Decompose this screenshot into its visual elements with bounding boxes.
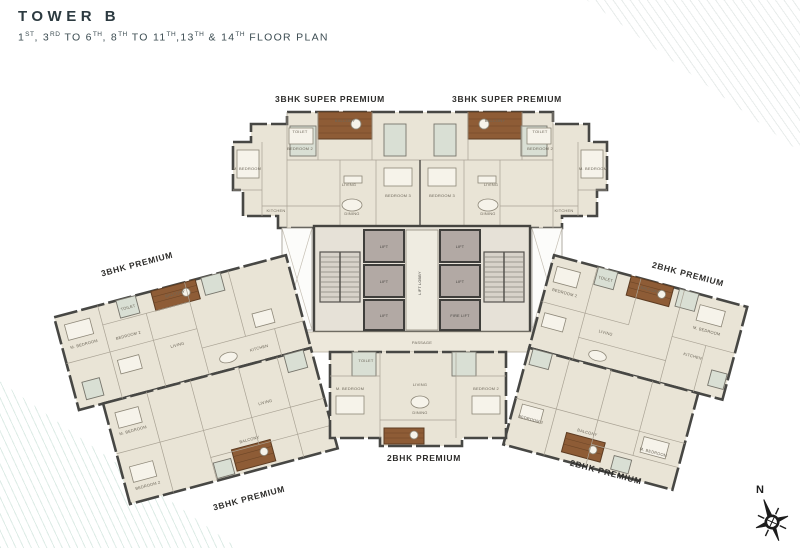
passage-label: PASSAGE [412,340,432,345]
lift-label: LIFT [380,280,389,284]
unit-label-3bhk-super-premium-left: 3BHK SUPER PREMIUM [275,94,385,104]
compass-rose: N [742,484,800,546]
lift-label: LIFT [380,245,389,249]
room-label: M. BEDROOM [579,166,607,171]
top-wing-units: M. BEDROOM BEDROOM 2 LIVING DINING KITCH… [233,112,607,228]
floor-plan-page: { "header": { "title": "TOWER B", "subti… [0,0,800,548]
toilet-pod [452,352,476,376]
room-label: TOILET [532,129,547,134]
central-core: LIFT LOBBY LIFT LIFT LIFT LIFT LIFT FIRE… [282,226,562,332]
balcony-top-left [318,112,372,139]
fire-lift-label: FIRE LIFT [450,314,470,318]
lift-lobby-label: LIFT LOBBY [418,271,422,295]
room-label: BALCONY [335,118,356,123]
room-label: DINING [480,211,495,216]
lift-label: LIFT [456,280,465,284]
toilet-pod [434,124,456,156]
room-label: BEDROOM 2 [527,146,553,151]
room-label: BEDROOM 3 [429,193,455,198]
room-label: LIVING [484,182,498,187]
compass-star-icon [742,484,800,546]
room-label: LIVING [342,182,356,187]
room-label: M. BEDROOM [336,386,364,391]
toilet-pod [708,370,728,390]
lift-lobby [406,230,438,330]
room-label: TOILET [292,129,307,134]
room-label: KITCHEN [267,208,286,213]
unit-label-2bhk-premium-bottom-center: 2BHK PREMIUM [387,453,461,463]
balcony [384,428,424,444]
unit-label-3bhk-super-premium-right: 3BHK SUPER PREMIUM [452,94,562,104]
lift-bank-left: LIFT LIFT LIFT [364,230,404,330]
room-label: BEDROOM 3 [385,193,411,198]
toilet-pod [352,352,376,376]
lift-bank-right: LIFT LIFT FIRE LIFT [440,230,480,330]
room-label: BALCONY [485,118,506,123]
room-label: DINING [344,211,359,216]
staircase-left [320,252,360,302]
room-label: BEDROOM 2 [473,386,499,391]
staircase-right [484,252,524,302]
balcony-top-right [468,112,522,139]
toilet-pod [384,124,406,156]
room-label: M. BEDROOM [233,166,261,171]
room-label: LIVING [413,382,427,387]
lift-label: LIFT [456,245,465,249]
left-wing-units: M. BEDROOM BEDROOM 2 LIVING BALCONY KITC… [54,255,338,510]
room-label: KITCHEN [555,208,574,213]
lift-label: LIFT [380,314,389,318]
bottom-center-unit: M. BEDROOM BEDROOM 2 LIVING DINING TOILE… [330,352,506,446]
room-label: DINING [412,410,427,415]
compass-north-label: N [756,484,764,496]
room-label: TOILET [358,358,373,363]
room-label: BEDROOM 2 [287,146,313,151]
